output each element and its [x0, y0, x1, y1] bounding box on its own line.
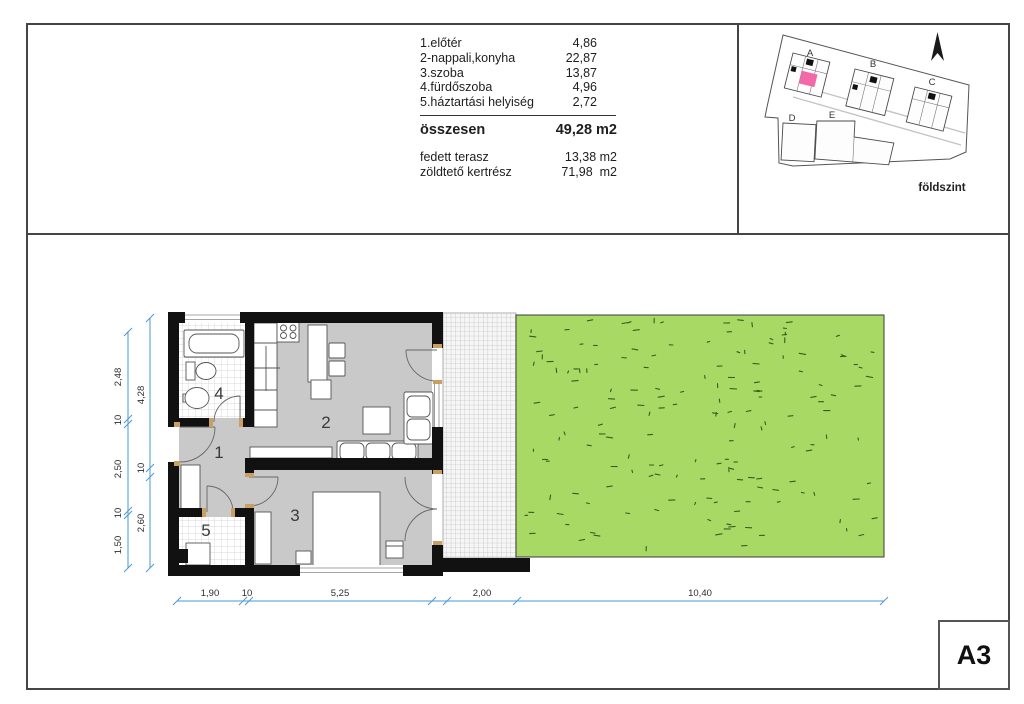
room-area: 22,87 [566, 51, 617, 66]
room-number-3: 3 [290, 506, 299, 525]
hall-cabinet [181, 465, 200, 509]
bathtub-icon [184, 330, 244, 357]
svg-text:2,48: 2,48 [113, 368, 124, 387]
table-row: fedett terasz 13,38 m2 [420, 150, 617, 165]
table-row: 4.fürdőszoba 4,96 [420, 80, 617, 95]
room-number-1: 1 [214, 443, 223, 462]
bed [313, 492, 380, 568]
coffee-table [363, 407, 390, 434]
stove-icon [277, 322, 299, 342]
sheet: 1.előtér 4,86 2-nappali,konyha 22,87 3.s… [0, 0, 1024, 704]
roof-garden-label: zöldtető kertrész [420, 165, 561, 180]
garden-area [516, 315, 884, 557]
svg-text:10: 10 [113, 415, 124, 426]
svg-text:10: 10 [242, 588, 253, 599]
sheet-code: A3 [957, 640, 992, 671]
total-area: 49,28 m2 [556, 121, 617, 140]
room-area: 4,96 [573, 80, 617, 95]
terrace-area [443, 313, 516, 558]
svg-text:2,60: 2,60 [136, 514, 147, 533]
terrace-label: fedett terasz [420, 150, 565, 165]
table-row: 2-nappali,konyha 22,87 [420, 51, 617, 66]
level-label: földszint [918, 182, 965, 194]
svg-text:4,28: 4,28 [136, 386, 147, 405]
area-summary-table: 1.előtér 4,86 2-nappali,konyha 22,87 3.s… [420, 36, 617, 180]
roof-garden-area: 71,98 m2 [561, 165, 617, 180]
svg-text:10: 10 [113, 508, 124, 519]
table-row: 3.szoba 13,87 [420, 66, 617, 81]
building-d-label: D [789, 113, 796, 124]
svg-text:10,40: 10,40 [688, 588, 712, 599]
building-a-label: A [807, 48, 814, 59]
room-name: 2-nappali,konyha [420, 51, 566, 66]
sheet-label-box: A3 [938, 620, 1010, 690]
svg-text:2,00: 2,00 [473, 588, 492, 599]
room-name: 5.háztartási helyiség [420, 95, 573, 110]
wardrobe [255, 512, 271, 564]
svg-text:2,50: 2,50 [113, 460, 124, 479]
washing-machine [186, 543, 210, 565]
table-row: zöldtető kertrész 71,98 m2 [420, 165, 617, 180]
total-row: összesen 49,28 m2 [420, 121, 617, 140]
room-area: 4,86 [573, 36, 617, 51]
table-separator [420, 115, 616, 116]
svg-text:5,25: 5,25 [331, 588, 350, 599]
room-number-2: 2 [321, 413, 330, 432]
svg-text:1,90: 1,90 [201, 588, 220, 599]
room-number-5: 5 [201, 521, 210, 540]
extra-areas: fedett terasz 13,38 m2 zöldtető kertrész… [420, 150, 617, 180]
table-row: 5.háztartási helyiség 2,72 [420, 95, 617, 110]
nightstand [296, 551, 311, 564]
building-b-label: B [870, 59, 876, 70]
table-row: 1.előtér 4,86 [420, 36, 617, 51]
room-area: 2,72 [573, 95, 617, 110]
svg-text:1,50: 1,50 [113, 536, 124, 555]
terrace-area: 13,38 m2 [565, 150, 617, 165]
floor-plan: 1 2 3 4 5 1,90 10 5,25 2,00 10,40 [26, 233, 1010, 690]
sideboard [250, 447, 332, 458]
total-label: összesen [420, 121, 556, 140]
room-name: 4.fürdőszoba [420, 80, 573, 95]
nightstand [386, 541, 403, 558]
building-d [781, 123, 816, 162]
svg-text:10: 10 [136, 463, 147, 474]
room-name: 1.előtér [420, 36, 573, 51]
building-e-label: E [829, 110, 835, 121]
building-c-label: C [929, 77, 936, 88]
loveseat [404, 392, 433, 444]
kitchen-counter [251, 323, 280, 427]
site-plan: A B C D E földszint [737, 23, 1010, 233]
room-name: 3.szoba [420, 66, 566, 81]
room-area: 13,87 [566, 66, 617, 81]
room-number-4: 4 [214, 384, 223, 403]
north-arrow-icon [931, 32, 944, 61]
toilet-icon [186, 362, 216, 380]
